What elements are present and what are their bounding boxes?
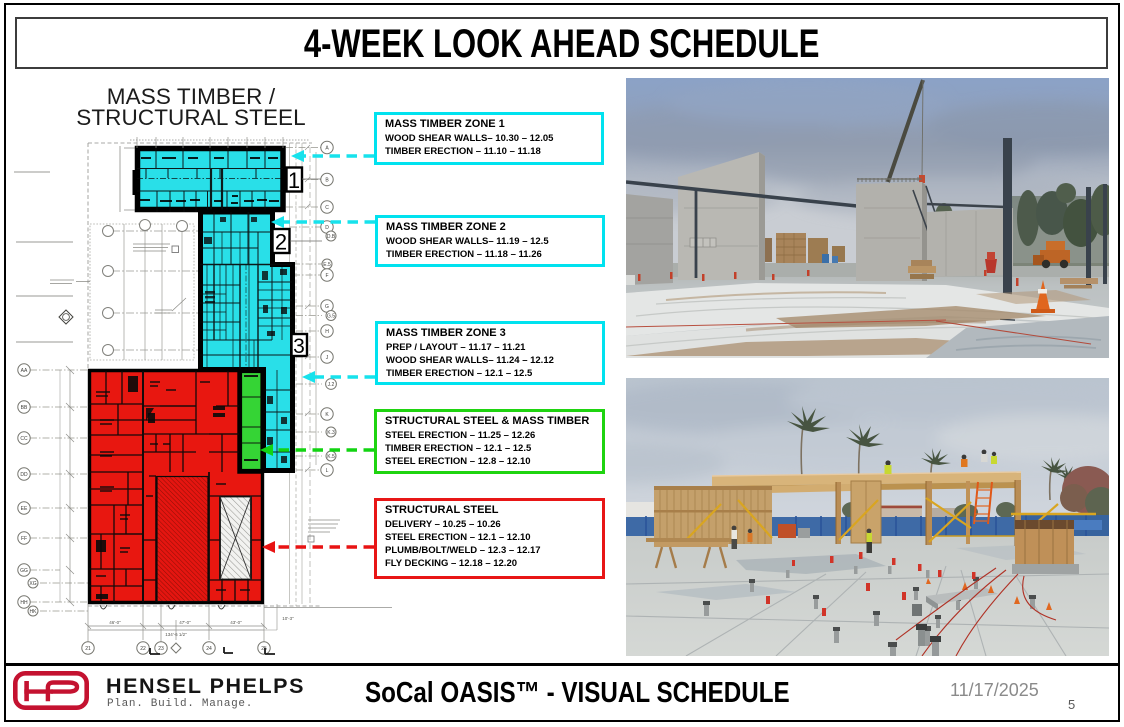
svg-text:H: H [325, 329, 329, 335]
svg-text:2: 2 [275, 230, 287, 255]
svg-text:43'-0": 43'-0" [230, 620, 242, 625]
svg-text:DD: DD [20, 472, 28, 478]
svg-text:D.B: D.B [327, 234, 336, 240]
svg-text:3: 3 [293, 335, 305, 358]
svg-text:D: D [325, 225, 329, 231]
svg-text:BB: BB [21, 405, 28, 411]
svg-text:21: 21 [85, 646, 91, 652]
svg-text:HK: HK [30, 609, 38, 615]
svg-text:C: C [325, 205, 329, 211]
svg-text:F: F [325, 273, 328, 279]
svg-text:23: 23 [158, 646, 164, 652]
svg-text:FF: FF [21, 536, 27, 542]
svg-text:GG: GG [20, 568, 28, 574]
svg-text:G.5: G.5 [327, 314, 335, 320]
svg-text:J.2: J.2 [328, 382, 335, 388]
svg-text:EE: EE [21, 506, 28, 512]
svg-text:10'-3": 10'-3" [282, 616, 294, 621]
svg-text:E.5: E.5 [323, 262, 331, 268]
svg-text:47'-0": 47'-0" [179, 620, 191, 625]
svg-text:G: G [325, 304, 329, 310]
svg-text:46'-0": 46'-0" [109, 620, 121, 625]
svg-text:1: 1 [288, 168, 300, 193]
svg-text:HH: HH [20, 600, 28, 606]
svg-text:22: 22 [140, 646, 146, 652]
svg-text:134'-6 1/2": 134'-6 1/2" [165, 632, 187, 637]
svg-text:XG: XG [29, 581, 36, 587]
svg-text:K.3: K.3 [327, 430, 335, 436]
svg-text:AA: AA [21, 368, 28, 374]
svg-text:L: L [326, 468, 329, 474]
svg-text:K.5: K.5 [327, 454, 335, 460]
svg-text:CC: CC [20, 436, 28, 442]
svg-text:24: 24 [206, 646, 212, 652]
